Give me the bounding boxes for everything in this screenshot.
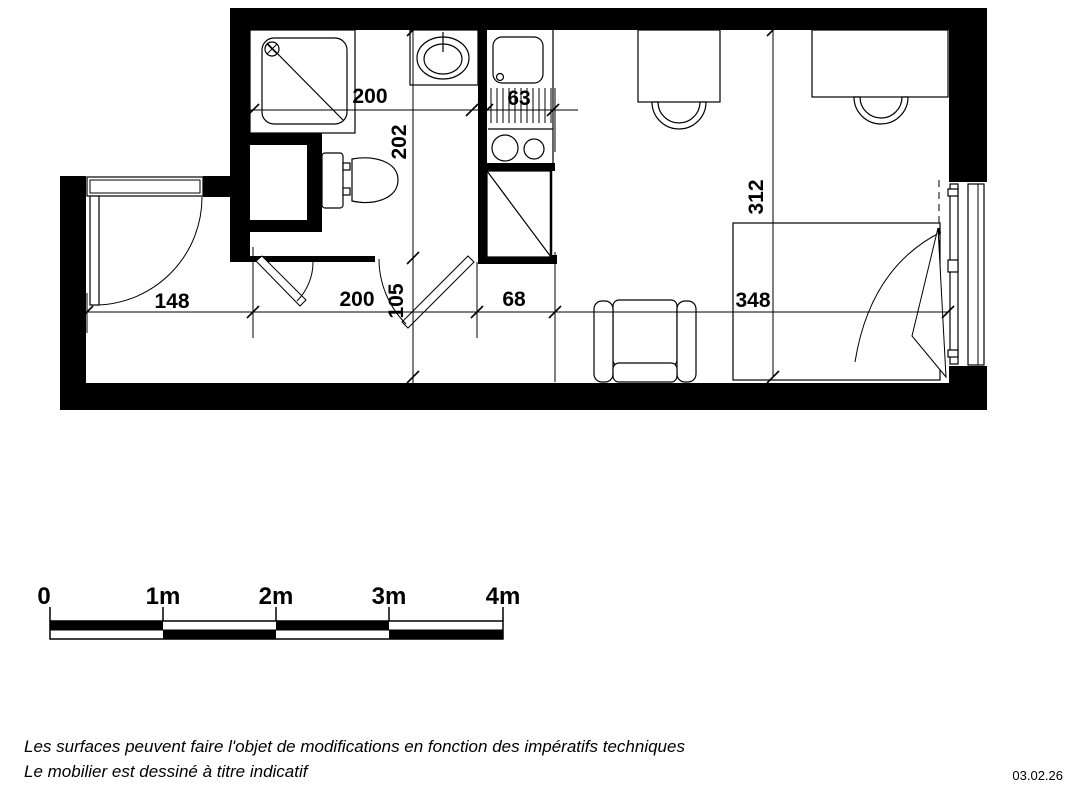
dim-label-room-width: 348 (735, 289, 770, 313)
dim-label-bathroom-width: 200 (352, 85, 387, 109)
vanity-sink (410, 30, 478, 85)
footer-note-1: Les surfaces peuvent faire l'objet de mo… (24, 737, 685, 757)
toilet-bowl (352, 158, 398, 203)
desk-1 (638, 30, 720, 129)
armchair-seat (613, 300, 677, 366)
kitchen-sink (493, 37, 543, 83)
wall-closet-south (240, 220, 322, 232)
wall-entry-segment (203, 176, 232, 197)
dim-label-hall-width: 200 (339, 288, 374, 312)
dim-label-passage-width: 68 (502, 288, 525, 312)
balcony-window (855, 180, 984, 377)
balcony-door-leaf (912, 228, 946, 377)
window-frame-inner (950, 184, 958, 364)
footer-note-2: Le mobilier est dessiné à titre indicati… (24, 762, 307, 782)
window-hinge (948, 350, 958, 357)
wc-door (255, 256, 320, 306)
desk-top (812, 30, 948, 97)
shower (250, 30, 355, 133)
toilet (322, 153, 398, 208)
wall-bottom (60, 383, 987, 410)
dim-label-bathroom-depth: 202 (388, 124, 412, 159)
hob-burner-small-icon (524, 139, 544, 159)
wall-below-shower (250, 133, 322, 145)
scale-label-0: 0 (37, 583, 50, 611)
wall-kitchen-divider (482, 163, 555, 171)
toilet-hinge (343, 188, 350, 195)
desk-2 (812, 30, 948, 124)
entry-door-swing-arc (99, 197, 202, 305)
wc-door-leaf (256, 256, 306, 306)
scale-bar (50, 607, 503, 639)
floor-plan-page: 148 200 68 348 200 63 202 105 312 0 1m 2… (0, 0, 1067, 800)
hob-burner-large-icon (492, 135, 518, 161)
dim-label-kitchen-width: 63 (507, 87, 530, 111)
kitchen (487, 30, 553, 257)
scale-label-2m: 2m (259, 583, 294, 611)
scale-label-1m: 1m (146, 583, 181, 611)
dim-label-entry-width: 148 (154, 290, 189, 314)
dim-label-hall-depth: 105 (385, 283, 409, 318)
toilet-tank (322, 153, 343, 208)
toilet-hinge (343, 163, 350, 170)
entry-door-threshold (90, 180, 200, 193)
floor-plan-drawing (0, 0, 1067, 800)
wall-left (60, 176, 86, 388)
entry-door (87, 177, 203, 305)
wall-closet-east (307, 145, 322, 232)
wall-kitchen-west (478, 8, 487, 262)
chair-2 (854, 97, 908, 124)
dim-label-room-depth: 312 (745, 179, 769, 214)
wall-top (232, 8, 987, 30)
scale-label-3m: 3m (372, 583, 407, 611)
armchair-arm-right (677, 301, 696, 382)
kitchen-tap-icon (497, 74, 504, 81)
shower-diagonal (267, 43, 343, 120)
window-hinge (948, 189, 958, 196)
window-frame-outer (968, 184, 984, 365)
window-hinge (948, 260, 958, 272)
chair-1 (652, 102, 706, 129)
armchair-front-cushion (613, 363, 677, 382)
desk-top (638, 30, 720, 102)
armchair-arm-left (594, 301, 613, 382)
scale-label-4m: 4m (486, 583, 521, 611)
footer-date: 03.02.26 (960, 768, 1063, 783)
wall-right-upper (949, 8, 987, 182)
entry-door-leaf (90, 196, 99, 305)
